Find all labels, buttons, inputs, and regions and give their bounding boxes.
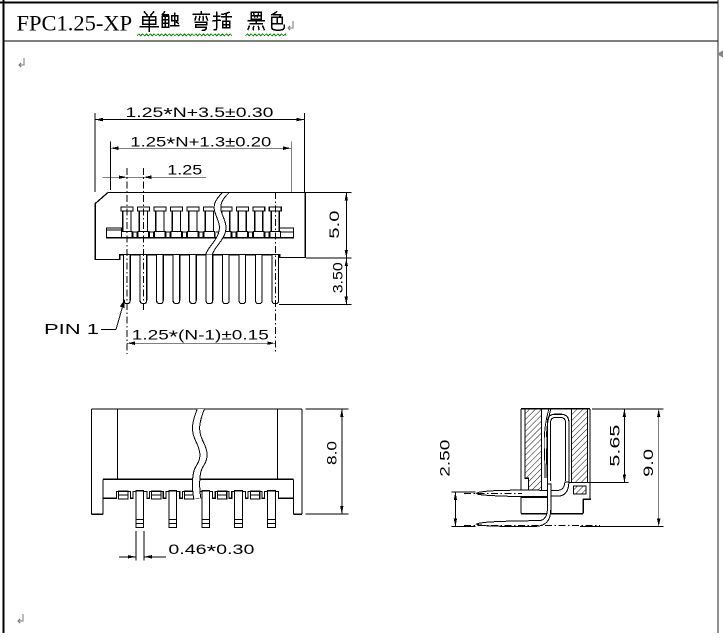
- svg-text:FPC1.25-XP: FPC1.25-XP: [17, 11, 133, 36]
- svg-text:3.50: 3.50: [330, 262, 346, 293]
- svg-text:PIN 1: PIN 1: [44, 321, 99, 338]
- svg-text:5.0: 5.0: [326, 210, 342, 238]
- svg-text:9.0: 9.0: [640, 449, 656, 477]
- svg-text:8.0: 8.0: [324, 441, 340, 465]
- svg-text:5.65: 5.65: [607, 424, 623, 466]
- svg-text:2.50: 2.50: [437, 439, 453, 476]
- svg-text:1.25: 1.25: [167, 162, 202, 178]
